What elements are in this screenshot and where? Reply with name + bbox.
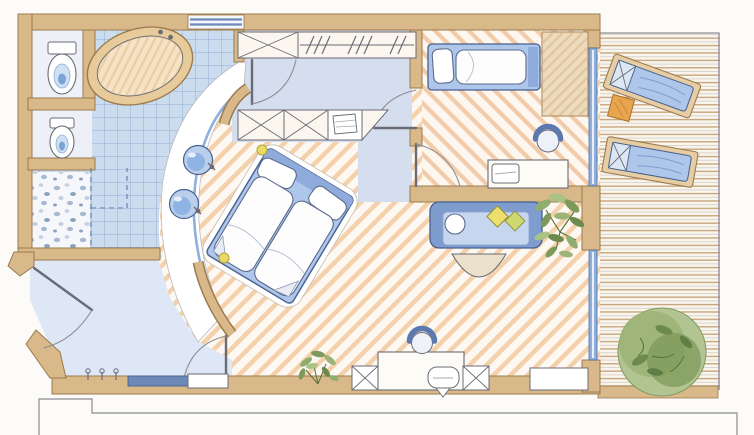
top-wall bbox=[18, 14, 600, 30]
left-wall bbox=[18, 14, 32, 258]
wardrobe-x-cabinet bbox=[238, 32, 298, 58]
floor-plan-image bbox=[0, 0, 754, 435]
wardrobe-x-cabinet bbox=[284, 110, 328, 140]
partition bbox=[28, 98, 95, 110]
tub-chair bbox=[536, 127, 561, 153]
toilet bbox=[48, 42, 76, 94]
ceiling-spot bbox=[219, 253, 229, 263]
laptop bbox=[492, 164, 519, 183]
hanging-rail bbox=[298, 32, 416, 58]
ceiling-spot bbox=[257, 145, 267, 155]
x-stool bbox=[463, 366, 489, 390]
balcony bbox=[598, 33, 720, 398]
window bbox=[188, 15, 244, 29]
pillow bbox=[432, 48, 454, 83]
bidet bbox=[50, 118, 74, 158]
duvet bbox=[456, 50, 526, 84]
floor-plan-page bbox=[0, 0, 754, 435]
partition bbox=[28, 158, 95, 170]
bench bbox=[128, 376, 188, 386]
glazing-post bbox=[582, 186, 600, 250]
single-bed bbox=[428, 44, 540, 90]
balcony-plant bbox=[618, 308, 706, 396]
shower-pebble-floor bbox=[30, 172, 90, 248]
round-cushion bbox=[445, 214, 465, 234]
bed-foot bbox=[528, 47, 538, 87]
hall-bath-wall bbox=[18, 248, 160, 260]
sofa bbox=[430, 202, 542, 248]
x-stool bbox=[352, 366, 378, 390]
console-with-towels bbox=[328, 110, 362, 140]
sideboard bbox=[530, 368, 588, 390]
wardrobe-x-cabinet bbox=[238, 110, 284, 140]
low-cabinet bbox=[188, 374, 228, 388]
tall-cabinet bbox=[542, 32, 588, 116]
